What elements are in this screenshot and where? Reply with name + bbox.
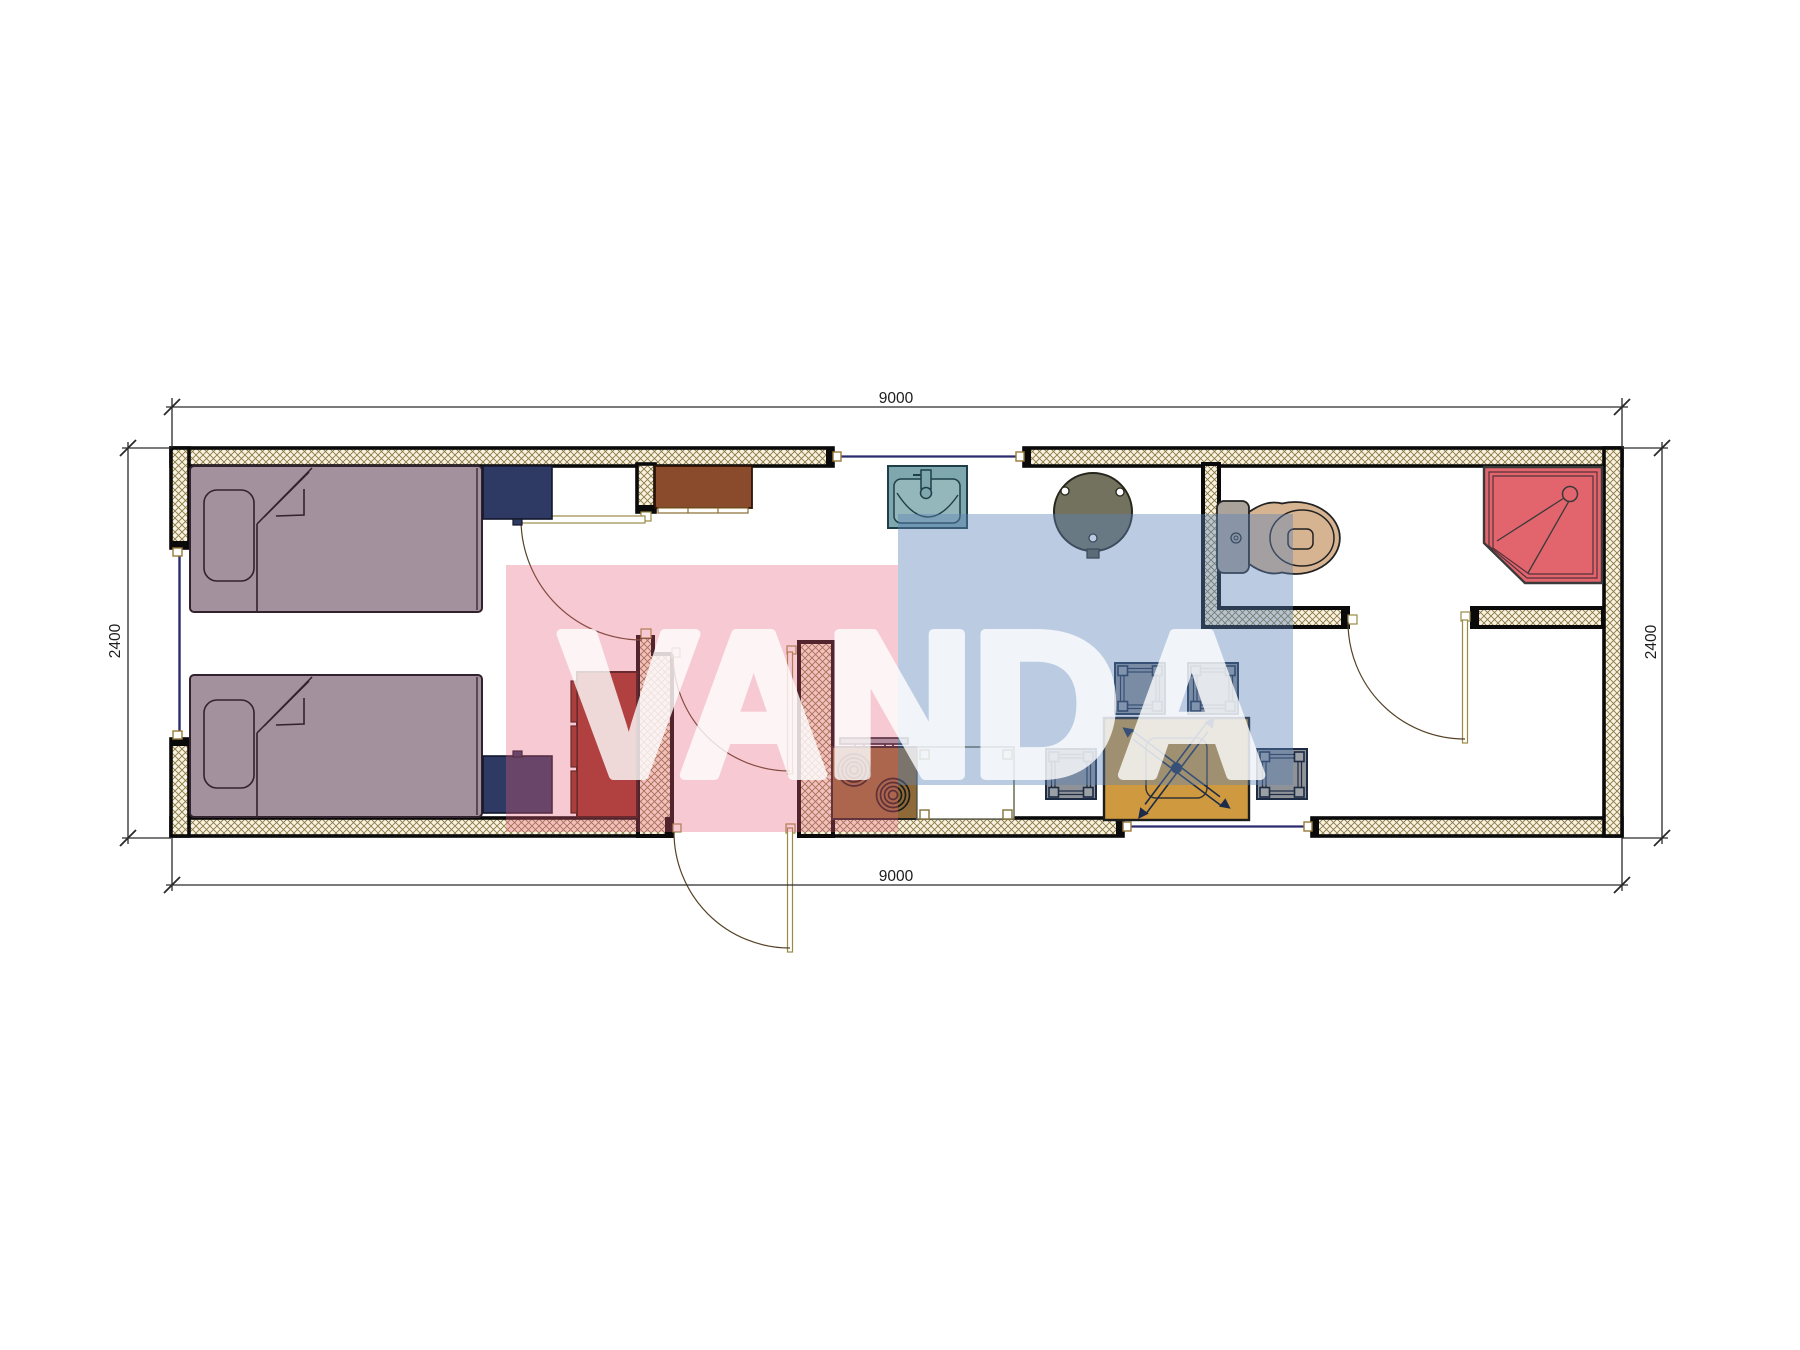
svg-text:9000: 9000 [879, 868, 914, 885]
svg-text:2400: 2400 [107, 623, 124, 658]
svg-text:VANDA: VANDA [560, 590, 1264, 819]
svg-text:2400: 2400 [1643, 624, 1660, 659]
svg-text:9000: 9000 [879, 390, 914, 407]
